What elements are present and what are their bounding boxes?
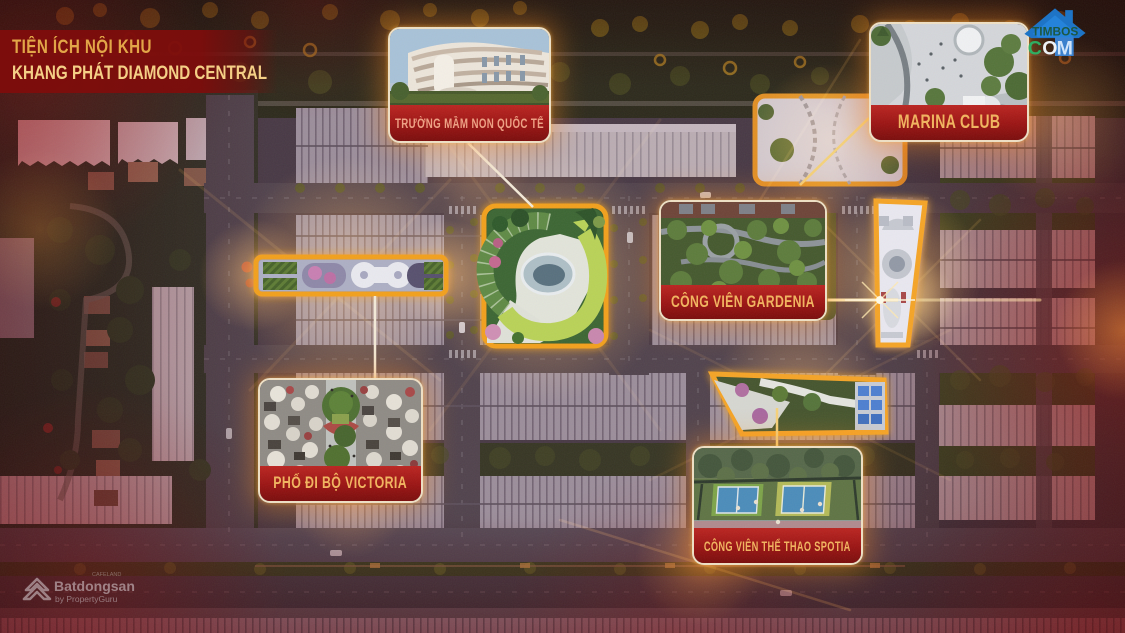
svg-text:by PropertyGuru: by PropertyGuru [55, 594, 118, 604]
svg-text:C: C [1028, 37, 1042, 59]
svg-text:CAFELAND: CAFELAND [92, 572, 121, 578]
svg-text:Batdongsan: Batdongsan [54, 578, 135, 594]
svg-text:M: M [1057, 37, 1073, 59]
svg-text:O: O [1042, 37, 1057, 59]
